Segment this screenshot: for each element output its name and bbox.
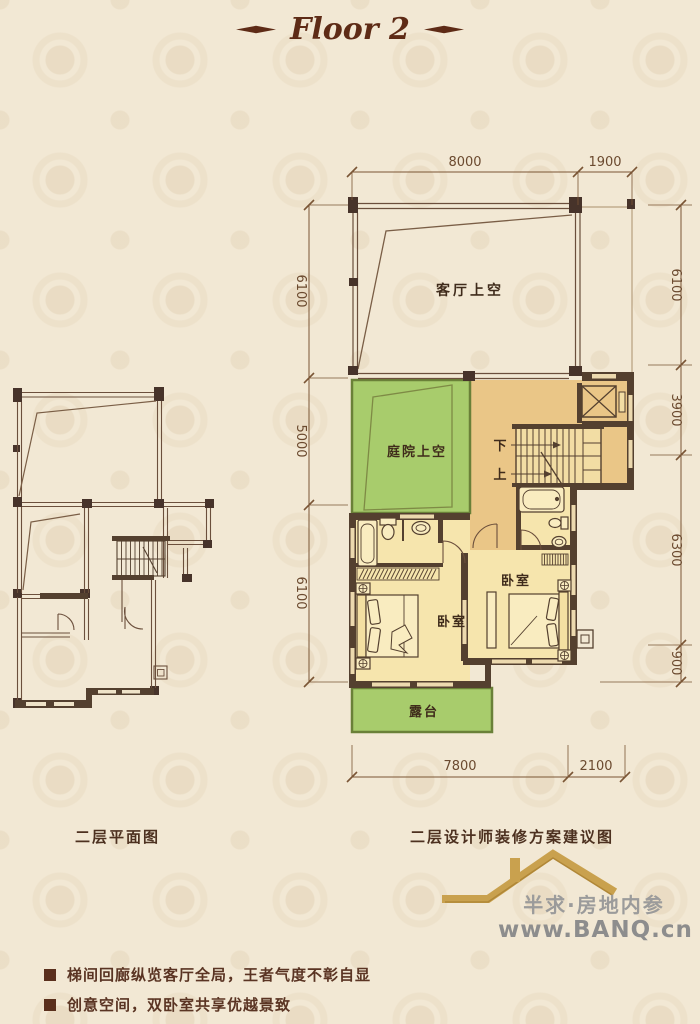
- bedroom-left-label: 卧室: [437, 614, 467, 630]
- page-header: Floor 2: [0, 12, 700, 47]
- dimension-bottom: 7800 2100: [347, 745, 630, 782]
- svg-text:6100: 6100: [293, 274, 308, 307]
- svg-text:6300: 6300: [668, 533, 683, 566]
- stairs-down-label: 下: [493, 439, 508, 454]
- svg-text:5000: 5000: [293, 424, 308, 457]
- title-right-ornament: [424, 25, 464, 34]
- stairs-up-label: 上: [493, 468, 508, 483]
- left-floor-plan: [13, 387, 214, 708]
- svg-text:7800: 7800: [443, 759, 476, 774]
- terrace-label: 露台: [409, 704, 439, 720]
- note-text: 创意空间，双卧室共享优越景致: [67, 994, 291, 1015]
- note-row: 梯间回廊纵览客厅全局，王者气度不彰自显: [44, 964, 371, 985]
- left-plan-walls: [18, 393, 211, 703]
- bullet-square-icon: [44, 969, 56, 981]
- bedroom-left-furniture: [356, 583, 418, 669]
- svg-text:6100: 6100: [668, 268, 683, 301]
- svg-text:900: 900: [668, 651, 683, 676]
- dimension-top: 8000 1900: [347, 155, 637, 205]
- logo-brand-name: 半求·房地内参: [498, 889, 690, 918]
- bullet-square-icon: [44, 999, 56, 1011]
- svg-text:2100: 2100: [579, 759, 612, 774]
- footer-notes: 梯间回廊纵览客厅全局，王者气度不彰自显 创意空间，双卧室共享优越景致: [44, 964, 371, 1024]
- page-title: Floor 2: [290, 12, 410, 47]
- title-left-ornament: [236, 25, 276, 34]
- brand-logo: 半求·房地内参 www.BANQ.cn: [440, 845, 690, 950]
- living-void-label: 客厅上空: [435, 282, 504, 299]
- left-plan-stairs: [112, 536, 170, 580]
- right-floor-plan: 客厅上空 庭院上空 卧室 卧室 露台 下 上 8000 1900 6100 39…: [293, 155, 692, 782]
- dimension-inner-left: 6100 5000 6100: [293, 200, 348, 687]
- left-plan-posts: [13, 387, 214, 708]
- svg-text:1900: 1900: [588, 155, 621, 170]
- bedroom-right-label: 卧室: [501, 573, 531, 589]
- logo-website: www.BANQ.cn: [498, 917, 690, 943]
- courtyard-void-label: 庭院上空: [387, 444, 447, 460]
- right-plan-floor-fills: [352, 380, 633, 732]
- svg-text:3900: 3900: [668, 393, 683, 426]
- left-plan-caption: 二层平面图: [75, 826, 160, 847]
- svg-text:8000: 8000: [448, 155, 481, 170]
- svg-text:6100: 6100: [293, 576, 308, 609]
- right-plan-caption: 二层设计师装修方案建议图: [410, 826, 614, 847]
- note-text: 梯间回廊纵览客厅全局，王者气度不彰自显: [67, 964, 371, 985]
- note-row: 创意空间，双卧室共享优越景致: [44, 994, 371, 1015]
